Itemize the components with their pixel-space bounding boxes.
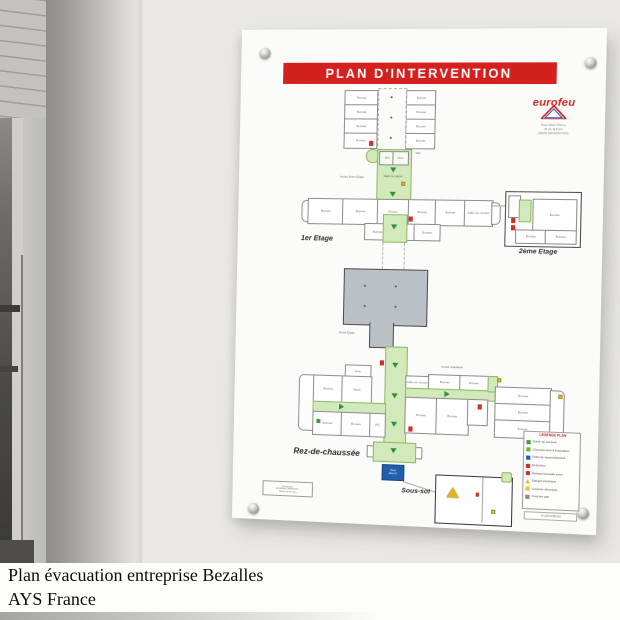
standoff-screw-top-left [259, 48, 270, 59]
eurofeu-logo: eurofeu [520, 96, 589, 119]
exit-icon [526, 440, 530, 444]
legend-item: Coupure gaz [523, 493, 579, 503]
column-dot [364, 305, 366, 307]
extinguisher-icon [369, 141, 373, 146]
electrical-box-icon [401, 182, 405, 186]
room-bureau: Bureau [515, 229, 547, 244]
caption-title: Plan évacuation entreprise Bezalles [8, 565, 263, 586]
screenshot: PLAN D'INTERVENTION eurofeu Rue Albert R… [0, 0, 620, 620]
room-bureau: Bureau [405, 133, 435, 150]
evac-arrow-icon [391, 393, 397, 398]
wall-corner-column [46, 0, 142, 563]
room-salle-reunion: Salle de réunion [464, 200, 494, 227]
ria-icon [511, 218, 515, 223]
stair-green-zone [518, 200, 531, 223]
ceiling-tiles [0, 0, 46, 118]
address-line: 28250 SENONCHES [538, 131, 569, 135]
window-frame-rail [21, 255, 23, 563]
workshop-hall [343, 268, 429, 327]
extinguisher-icon [380, 360, 384, 365]
evac-arrow-icon [392, 363, 398, 368]
room-bureau: Bureau [408, 199, 438, 226]
eurofeu-address: Rue Albert Rémy ZI de la Fust 28250 SENO… [538, 123, 569, 135]
extinguisher-icon [526, 463, 530, 467]
plan-title: PLAN D'INTERVENTION [325, 66, 512, 80]
evac-arrow-icon [444, 391, 449, 397]
second-floor-label: 2ème Etage [519, 248, 558, 256]
room-wc: WC [369, 413, 386, 438]
photo-wall-scene: PLAN D'INTERVENTION eurofeu Rue Albert R… [0, 0, 620, 563]
legend-box: LEGENDE PLAN Sortie de secours Chemineme… [522, 431, 581, 512]
basement-outline [434, 474, 513, 527]
room-bureau: Bureau [532, 199, 578, 233]
room-bureau: Bureau [545, 230, 577, 245]
you-are-here-sign: Vous êtes ici [381, 464, 404, 481]
plan-reference: 07-1137-DSM-001 [540, 515, 560, 518]
ria-icon [526, 471, 530, 475]
first-floor-label: 1er Etage [301, 235, 333, 243]
evac-arrow-icon [339, 404, 344, 410]
column-dot [390, 137, 392, 139]
extinguisher-icon [409, 216, 413, 221]
evac-arrow-icon [391, 224, 397, 229]
san-label: San. [415, 152, 421, 155]
window-frame [0, 118, 12, 563]
electrical-hazard-icon [526, 479, 530, 483]
standoff-screw-top-right [585, 57, 597, 68]
evac-arrow-icon [390, 192, 396, 197]
room-vest: Vest. [392, 151, 409, 165]
evac-arrow-icon [390, 167, 396, 172]
exit-icon [501, 472, 512, 483]
caption-subtitle: AYS France [8, 589, 96, 610]
standoff-screw-bottom-left [248, 503, 259, 515]
evac-path-icon [526, 448, 530, 452]
extinguisher-icon [476, 492, 479, 496]
workshop-stem [369, 322, 394, 348]
ground-floor-label: Rez-de-chaussée [293, 446, 360, 458]
extinguisher-icon [478, 404, 482, 409]
acces-2eme-label: Accès 2ème Etage [340, 175, 364, 179]
window-frame-bar [0, 366, 18, 372]
stamp-line: 28250 Senonches [279, 490, 297, 492]
plan-title-banner: PLAN D'INTERVENTION [283, 62, 557, 84]
room-small [467, 399, 489, 426]
basement-label: Sous-sol [388, 487, 430, 496]
evac-arrow-icon [390, 448, 396, 453]
exit-icon [316, 419, 320, 423]
room-bureau: Bureau [434, 199, 466, 226]
intervention-plan-panel: PLAN D'INTERVENTION eurofeu Rue Albert R… [232, 28, 607, 535]
column-dot [364, 285, 366, 287]
room-bureau: Bureau [312, 411, 343, 436]
extinguisher-icon [408, 426, 412, 431]
room-bureau: Bureau [435, 398, 469, 436]
maker-stamp-box: Réalisation EUROFEU SERVICES 28250 Senon… [262, 480, 313, 497]
electrical-box-icon [491, 510, 495, 514]
assembly-point-icon [526, 455, 530, 459]
column-dot [390, 117, 392, 119]
electrical-box-icon [497, 378, 501, 382]
salle-de-pause-label: Salle de pause [384, 175, 403, 178]
power-cutoff-icon [525, 487, 529, 491]
you-are-here-text: Vous êtes ici [389, 470, 398, 476]
caption-shadow [0, 612, 380, 620]
connector-dashes [382, 243, 405, 270]
caption-strip: Plan évacuation entreprise Bezalles AYS … [0, 563, 620, 620]
evac-arrow-icon [391, 422, 397, 427]
room-bureau: Bureau [340, 412, 371, 437]
acces-etage-label: Accès Etage [339, 331, 355, 335]
window-frame-base [0, 540, 34, 563]
acces-chaufferie-label: Accès chaufferie [441, 366, 463, 370]
plan-reference-box: 07-1137-DSM-001 [524, 511, 577, 522]
electrical-hazard-icon [446, 487, 459, 498]
gas-cutoff-icon [525, 495, 529, 499]
room-bureau: Bureau [342, 198, 379, 225]
room-bureau: Bureau [413, 224, 440, 242]
column-dot [391, 96, 393, 98]
electrical-box-icon [558, 395, 562, 399]
column-dot [395, 285, 397, 287]
window-frame-bar [0, 305, 20, 312]
connector-line [492, 205, 505, 206]
legend-title: LEGENDE PLAN [539, 433, 565, 436]
extinguisher-icon [511, 225, 515, 230]
room-stock: Stock [341, 375, 372, 404]
corridor-door [23, 118, 46, 563]
room-bureau: Bureau [307, 198, 344, 225]
stamp-line: Réalisation [282, 486, 293, 487]
room-bureau: Bureau [313, 374, 344, 403]
column-dot [394, 306, 396, 308]
eurofeu-wordmark: eurofeu [520, 96, 589, 109]
stamp-line: EUROFEU SERVICES [277, 488, 299, 490]
